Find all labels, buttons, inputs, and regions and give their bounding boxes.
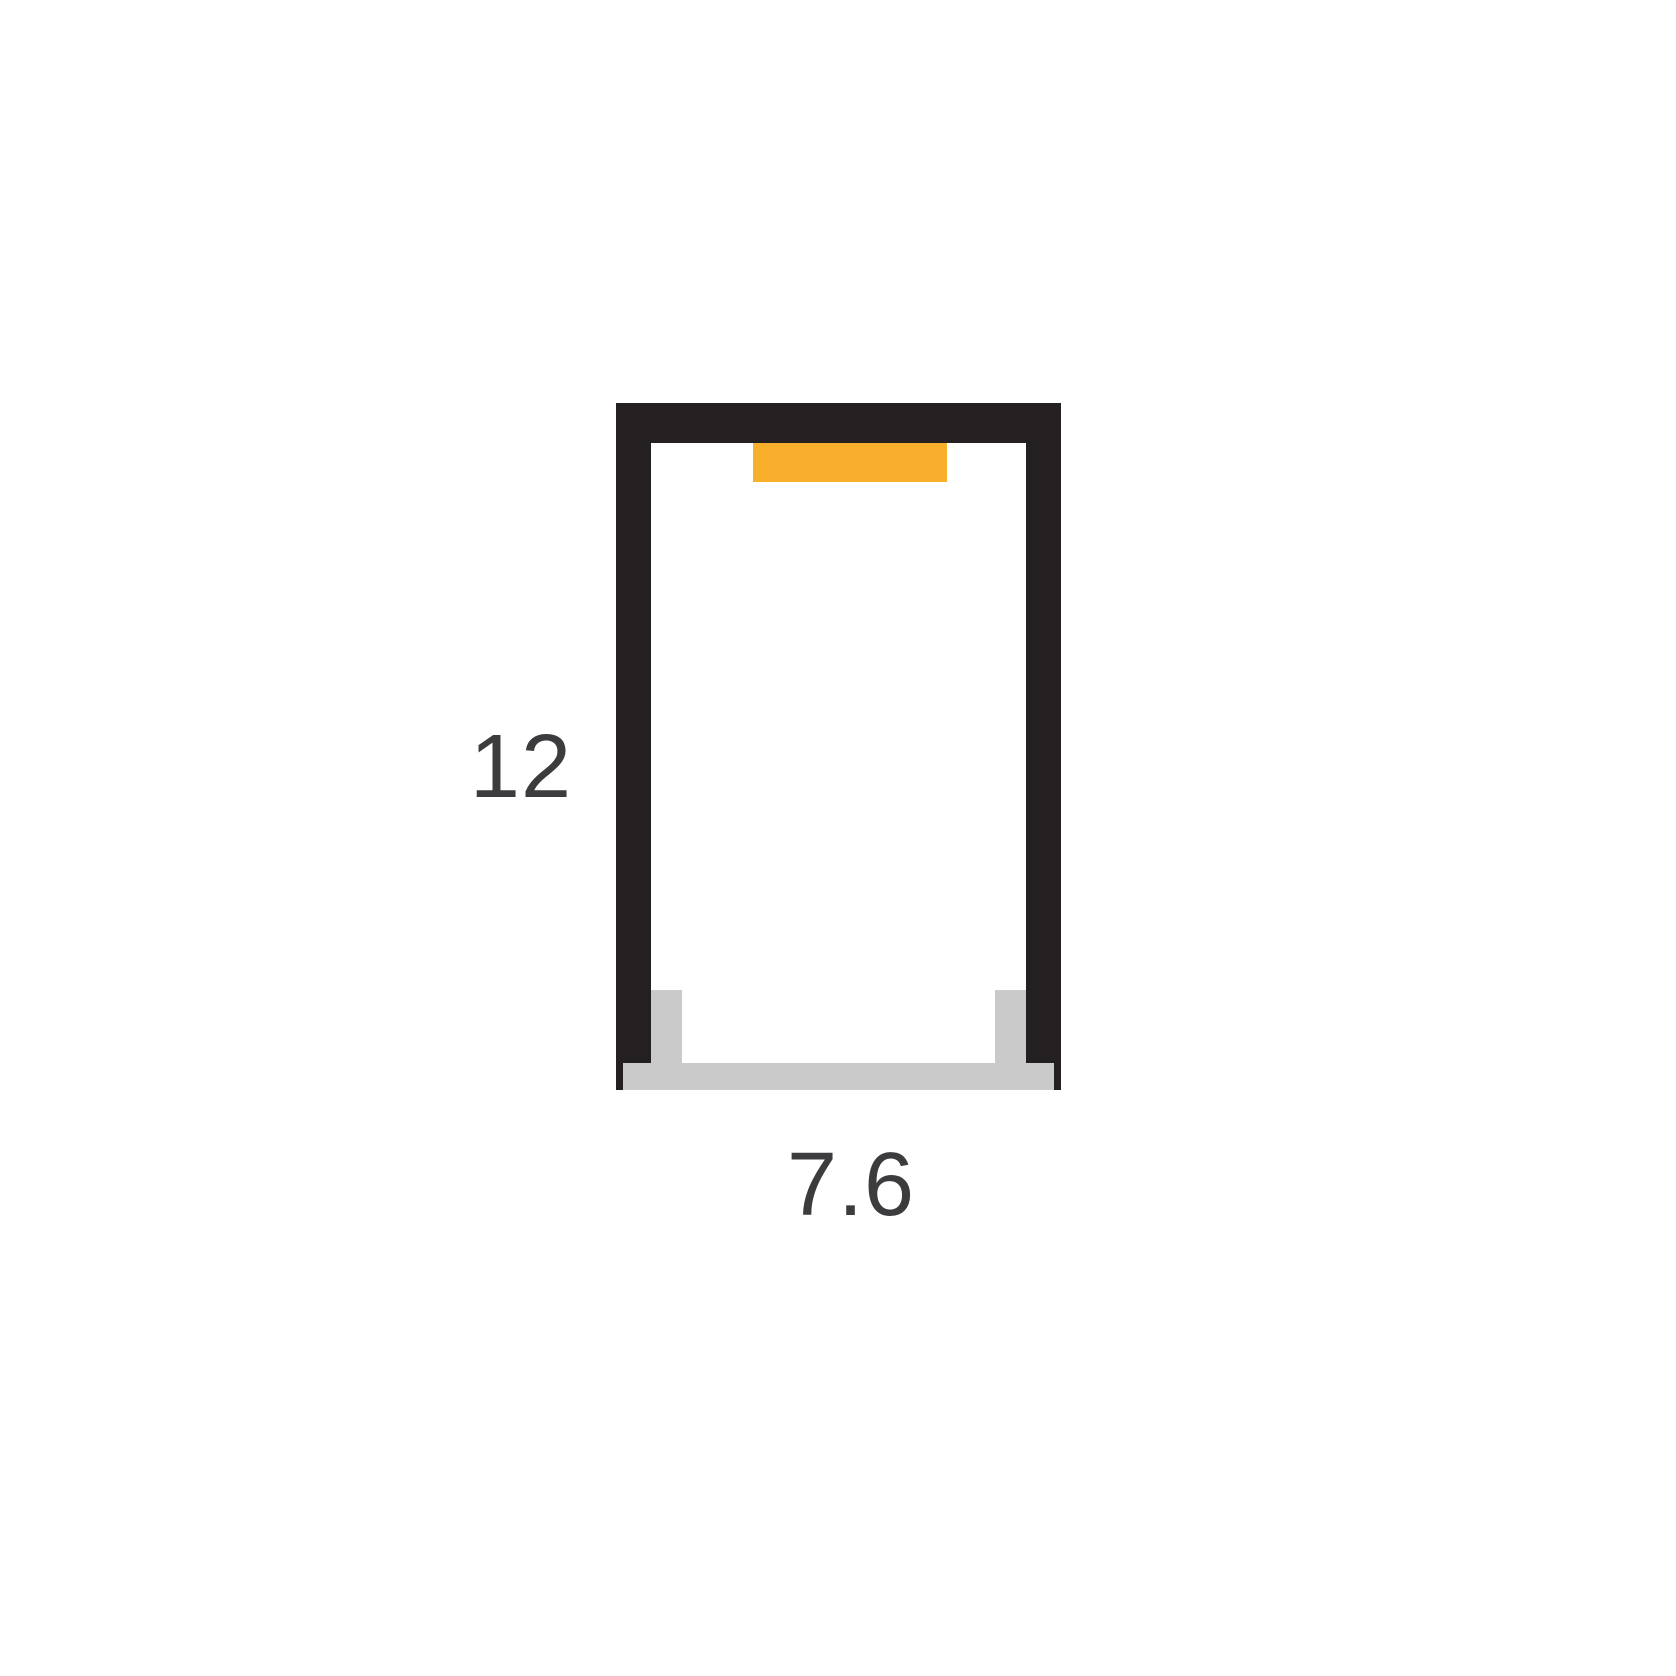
- diffuser-left-tab: [651, 990, 682, 1063]
- profile-cross-section-diagram: 12 7.6: [0, 0, 1676, 1676]
- housing-left-foot: [616, 1063, 623, 1090]
- diffuser-bottom-plate: [623, 1063, 1054, 1090]
- height-dimension-label: 12: [352, 717, 572, 817]
- diffuser-right-tab: [995, 990, 1026, 1063]
- width-dimension-label: 7.6: [651, 1135, 1051, 1235]
- led-strip: [753, 443, 947, 482]
- housing-right-wall: [1026, 403, 1061, 1063]
- housing-top-wall: [616, 403, 1061, 443]
- housing-left-wall: [616, 403, 651, 1063]
- housing-right-foot: [1054, 1063, 1061, 1090]
